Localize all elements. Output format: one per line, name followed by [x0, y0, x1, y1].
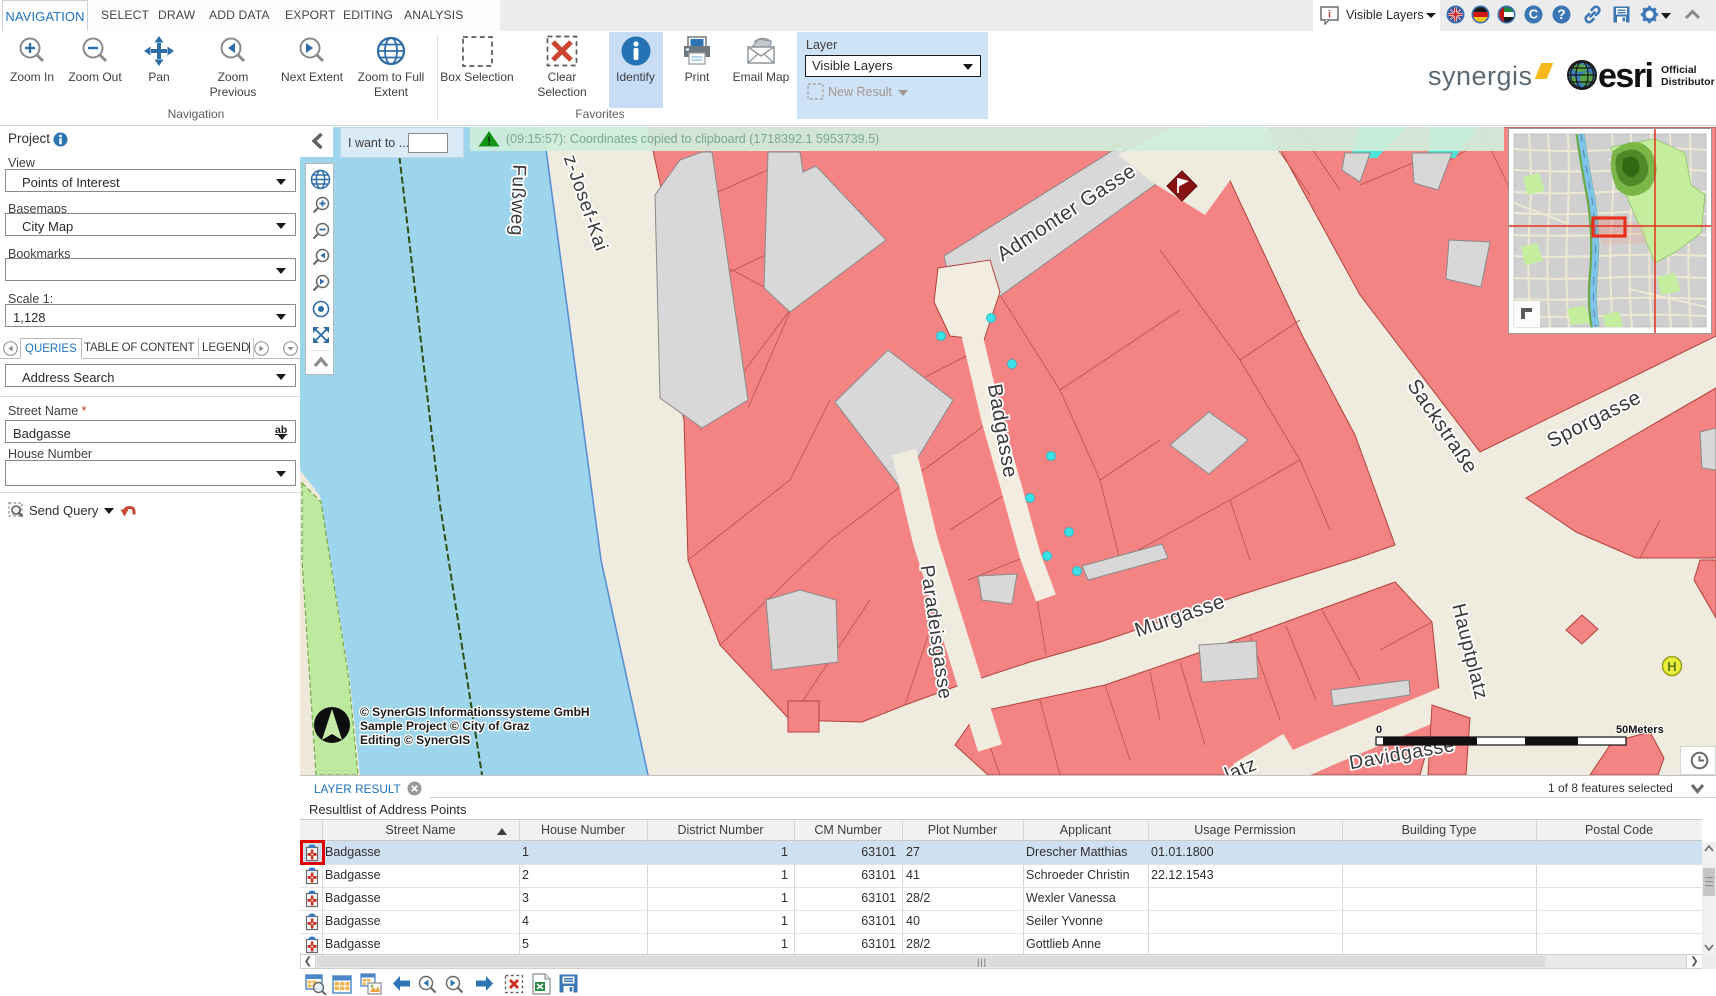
svg-text:50Meters: 50Meters: [1616, 724, 1664, 736]
svg-text:i: i: [1328, 10, 1331, 21]
svg-text:!: !: [487, 136, 491, 148]
svg-text:© SynerGIS Informationssysteme: © SynerGIS Informationssysteme GmbH: [360, 705, 590, 719]
svg-text:(09:15:57): Coordinates copied: (09:15:57): Coordinates copied to clipbo…: [506, 132, 879, 146]
svg-text:Editing © SynerGIS: Editing © SynerGIS: [360, 733, 470, 747]
svg-text:H: H: [1667, 659, 1676, 674]
svg-text:Fußweg: Fußweg: [506, 164, 529, 236]
svg-text:ab: ab: [275, 424, 287, 436]
svg-text:C: C: [1529, 7, 1539, 22]
svg-text:?: ?: [1557, 7, 1565, 22]
svg-text:0: 0: [1376, 724, 1382, 736]
svg-text:Sample Project © City of Graz: Sample Project © City of Graz: [360, 719, 530, 733]
